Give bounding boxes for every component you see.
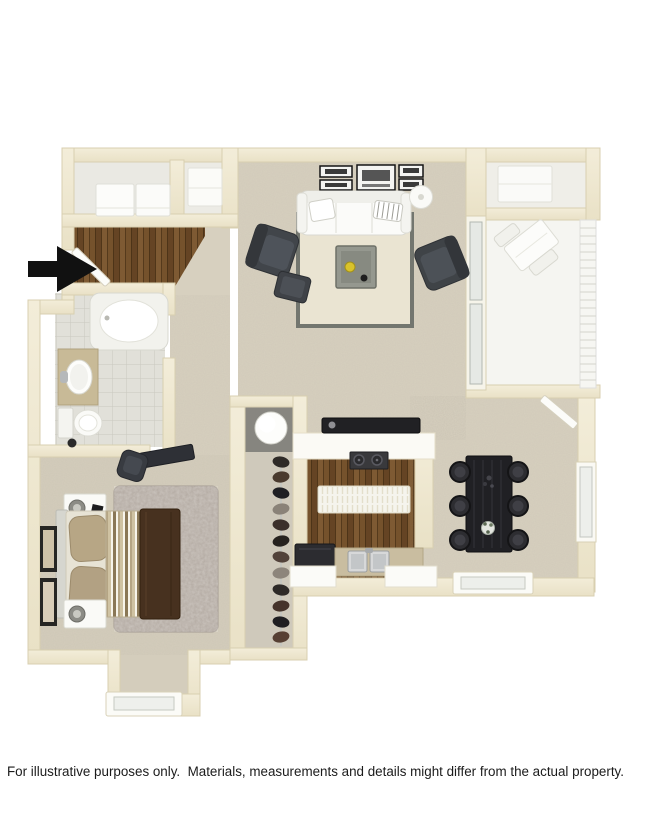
- wall-segment: [62, 148, 74, 250]
- wall-segment: [466, 148, 486, 218]
- nightstand-bottom: [64, 600, 106, 628]
- dining-table: [466, 456, 512, 552]
- bathtub: [90, 293, 168, 350]
- sofa: [297, 191, 411, 235]
- sofa-pillow: [308, 198, 335, 222]
- utility-closet: [255, 412, 287, 444]
- wall-segment: [170, 160, 184, 218]
- dining-chair: [508, 462, 528, 482]
- wall-top: [62, 148, 600, 162]
- hall-closet-shelf: [188, 168, 222, 206]
- bay-floor: [118, 650, 196, 698]
- floor-plan-rendering: [0, 0, 650, 828]
- faucet: [365, 548, 373, 553]
- wall-media-units: [320, 165, 423, 190]
- wall-left: [28, 300, 40, 656]
- wall-segment: [586, 148, 600, 220]
- kitchen-island: [318, 486, 410, 513]
- floor-lamp: [410, 186, 433, 209]
- cooktop: [350, 452, 388, 469]
- wall-segment: [230, 396, 245, 660]
- dining-chair: [508, 530, 528, 550]
- dining-chair: [450, 496, 470, 516]
- dining-side-window: [576, 462, 596, 542]
- washer: [96, 184, 134, 216]
- wall-bottom: [293, 578, 594, 596]
- coffee-table: [336, 246, 376, 288]
- striped-pillow: [373, 200, 403, 222]
- decor-bowl: [345, 262, 355, 272]
- pillow: [68, 515, 108, 562]
- cabinet: [290, 566, 336, 587]
- decor-item: [361, 275, 368, 282]
- tub-drain: [105, 316, 110, 321]
- railing: [580, 220, 596, 388]
- wall-segment: [486, 208, 600, 220]
- dining-chair: [450, 462, 470, 482]
- waste-bin: [68, 439, 77, 448]
- sliding-glass-door: [466, 216, 486, 390]
- dining-area: [450, 456, 528, 552]
- bedroom-bay-window: [106, 692, 182, 716]
- wall-segment: [230, 648, 307, 660]
- disclaimer-text: For illustrative purposes only. Material…: [7, 764, 647, 779]
- dining-bottom-window: [453, 572, 533, 594]
- faucet: [60, 371, 68, 383]
- cabinet: [385, 566, 437, 587]
- storage-shelf: [498, 166, 552, 202]
- floor-plan-page: For illustrative purposes only. Material…: [0, 0, 650, 828]
- vanity-sink: [58, 349, 98, 405]
- dining-chair: [450, 530, 470, 550]
- wall-segment: [28, 650, 120, 664]
- striped-blanket: [106, 511, 140, 617]
- wall-segment: [163, 358, 175, 457]
- dryer: [136, 184, 170, 216]
- texture-overlay: [170, 295, 230, 455]
- dining-chair: [508, 496, 528, 516]
- laundry-closet: [96, 184, 170, 216]
